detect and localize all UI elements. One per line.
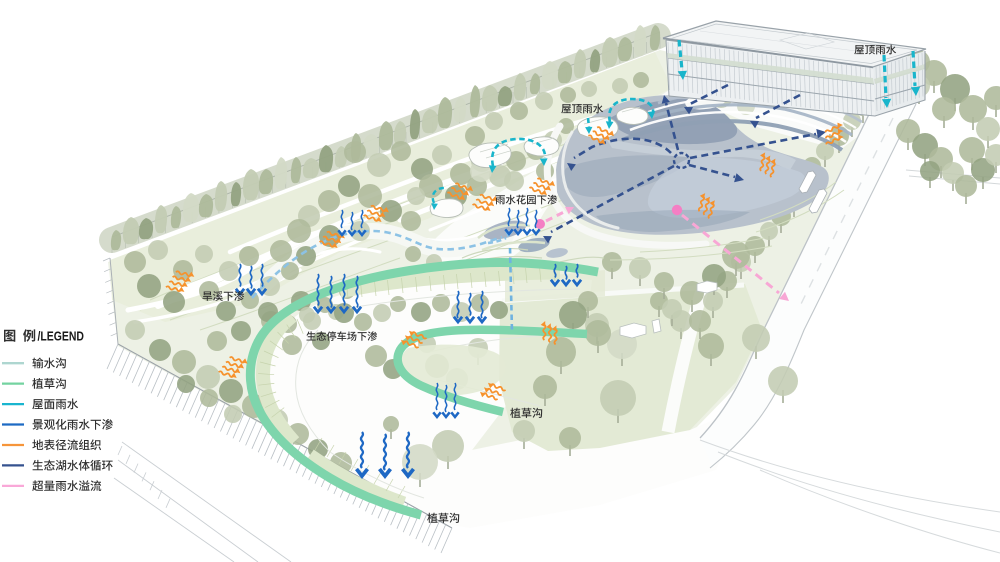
svg-text:/LEGEND: /LEGEND [38,329,85,344]
